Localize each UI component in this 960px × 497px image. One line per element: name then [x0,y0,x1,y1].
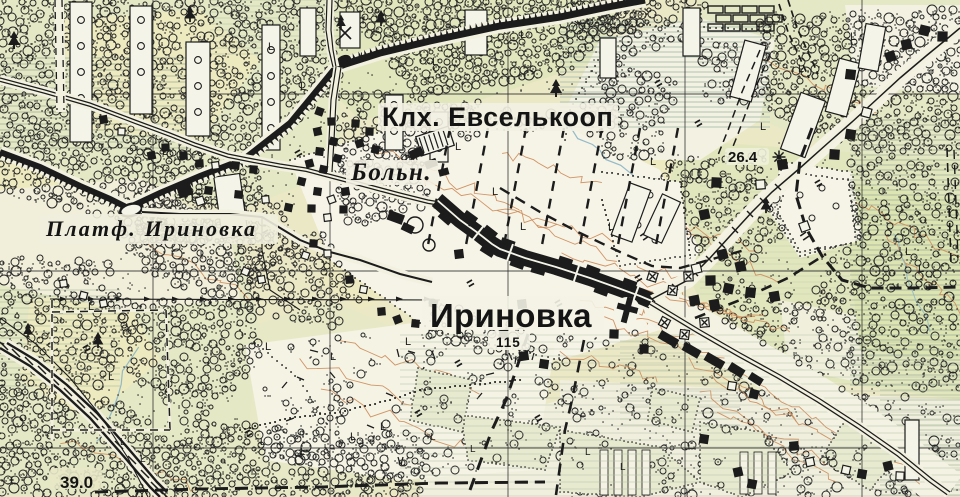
svg-text:L: L [432,56,438,68]
svg-text:L: L [905,246,911,258]
svg-text:L: L [850,31,856,43]
svg-text:L: L [380,421,386,433]
svg-text:L: L [405,336,411,348]
svg-text:L: L [300,81,306,93]
svg-text:115: 115 [496,335,521,350]
svg-text:L: L [430,432,436,443]
svg-text:L: L [585,447,591,458]
svg-text:L: L [650,156,656,168]
svg-text:L: L [455,141,461,153]
svg-text:L: L [268,41,274,53]
svg-text:L: L [162,146,168,158]
svg-text:L: L [798,63,804,75]
svg-text:L: L [492,186,498,198]
svg-text:L: L [88,301,94,313]
svg-text:L: L [718,179,724,191]
svg-text:L: L [260,437,266,448]
svg-text:L: L [120,437,126,448]
svg-text:L: L [760,121,766,133]
svg-text:26.4: 26.4 [728,149,758,166]
svg-text:L: L [265,341,271,353]
svg-text:L: L [520,221,526,233]
svg-text:L: L [140,454,146,465]
svg-text:39.0: 39.0 [60,473,93,492]
svg-text:L: L [300,447,306,458]
svg-text:L: L [520,29,526,41]
svg-text:Клх. Евселькооп: Клх. Евселькооп [382,102,613,132]
svg-text:L: L [620,462,626,473]
svg-text:Больн.: Больн. [350,159,432,186]
svg-text:Платф. Ириновка: Платф. Ириновка [45,216,257,241]
svg-text:L: L [608,221,614,233]
svg-text:L: L [918,263,924,275]
svg-text:Ириновка: Ириновка [430,297,592,334]
svg-text:L: L [360,51,366,63]
svg-text:L: L [330,351,336,363]
svg-text:L: L [470,444,476,455]
svg-text:L: L [108,371,114,383]
svg-text:L: L [350,431,356,443]
